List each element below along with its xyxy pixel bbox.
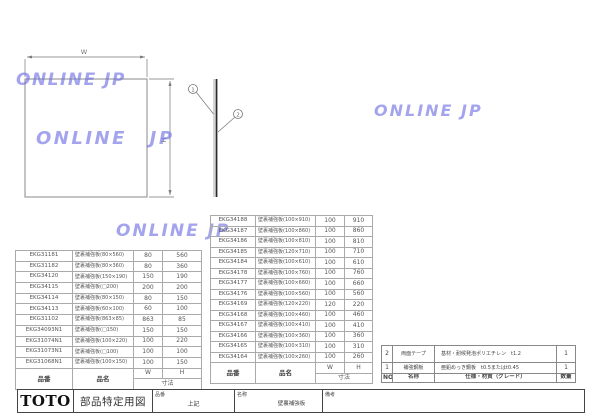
cell-name: 壁裏補強板(100×410) xyxy=(256,321,316,332)
cell-name: 壁裏補強板(100×360) xyxy=(256,331,316,342)
cell-w: 100 xyxy=(316,216,345,227)
table-row: EKG31182壁裏補強板(80×360)80360 xyxy=(16,261,202,272)
cell-w: 100 xyxy=(316,321,345,332)
cell-no: EKG34188 xyxy=(211,216,256,227)
table-row: EKG31068N1壁裏補強板(100×150)100150 xyxy=(16,357,202,368)
parts-table-left: EKG31181壁裏補強板(80×560)80560EKG31182壁裏補強板(… xyxy=(15,250,202,390)
cell-no: EKG34115 xyxy=(16,283,73,294)
header-dimension: 寸法 xyxy=(134,379,202,390)
cell-name: 壁裏補強板(□150) xyxy=(73,325,134,336)
bom-header-name: 名称 xyxy=(393,374,435,383)
cell-no: EKG31102 xyxy=(16,315,73,326)
watermark-online-jp: ONLINE JP xyxy=(16,70,126,90)
table-row: EKG31181壁裏補強板(80×560)80560 xyxy=(16,251,202,262)
cell-name: 壁裏補強板(100×220) xyxy=(73,336,134,347)
cell-h: 100 xyxy=(163,304,202,315)
cell-no: EKG34113 xyxy=(16,304,73,315)
cell-name: 壁裏補強板(80×360) xyxy=(73,261,134,272)
cell-no: EKG34178 xyxy=(211,268,256,279)
cell-no: EKG31182 xyxy=(16,261,73,272)
cell-name: 壁裏補強板(120×220) xyxy=(256,300,316,311)
watermark-online-jp: ONLINE JP xyxy=(36,128,175,149)
header-w: W xyxy=(134,368,163,379)
cell-spec: 基材・耐候発泡ポリエチレン t1.2 xyxy=(435,346,557,363)
table-row: EKG34178壁裏補強板(100×760)100760 xyxy=(211,268,373,279)
header-part-name: 品名 xyxy=(256,363,316,384)
cell-h: 560 xyxy=(163,251,202,262)
cell-name: 壁裏補強板(100×910) xyxy=(256,216,316,227)
cell-name: 壁裏補強板(150×190) xyxy=(73,272,134,283)
table-row: 2両面テープ基材・耐候発泡ポリエチレン t1.21 xyxy=(382,346,576,363)
cell-name: 壁裏補強板(100×760) xyxy=(256,268,316,279)
cell-w: 100 xyxy=(134,357,163,368)
bom-header-spec: 仕様・材質（グレード） xyxy=(435,374,557,383)
cell-no: EKG31073N1 xyxy=(16,347,73,358)
cell-name: 壁裏補強板(100×660) xyxy=(256,279,316,290)
cell-h: 360 xyxy=(163,261,202,272)
cell-h: 860 xyxy=(345,226,373,237)
cell-w: 100 xyxy=(316,226,345,237)
cell-h: 660 xyxy=(345,279,373,290)
cell-w: 863 xyxy=(134,315,163,326)
cell-w: 100 xyxy=(134,347,163,358)
cell-no: EKG34165 xyxy=(211,342,256,353)
cell-w: 100 xyxy=(316,289,345,300)
cell-no: EKG34177 xyxy=(211,279,256,290)
cell-no: EKG31068N1 xyxy=(16,357,73,368)
cell-h: 910 xyxy=(345,216,373,227)
cell-w: 120 xyxy=(316,300,345,311)
cell-no: EKG34166 xyxy=(211,331,256,342)
table-row: EKG31073N1壁裏補強板(□100)100100 xyxy=(16,347,202,358)
cell-w: 100 xyxy=(316,331,345,342)
table-row: EKG34115壁裏補強板(□200)200200 xyxy=(16,283,202,294)
cell-name: 壁裏補強板(100×860) xyxy=(256,226,316,237)
header-dimension: 寸法 xyxy=(316,373,373,384)
cell-name: 壁裏補強板(100×310) xyxy=(256,342,316,353)
cell-no: EKG34093N1 xyxy=(16,325,73,336)
part-no-cell: 品番 上記 xyxy=(153,390,235,412)
cell-h: 360 xyxy=(345,331,373,342)
cell-name: 壁裏補強板(100×610) xyxy=(256,258,316,269)
table-row: EKG34113壁裏補強板(60×100)60100 xyxy=(16,304,202,315)
cell-name: 壁裏補強板(100×460) xyxy=(256,310,316,321)
cell-qty: 1 xyxy=(557,363,576,374)
cell-no: EKG34186 xyxy=(211,237,256,248)
cell-name: 壁裏補強板(100×560) xyxy=(256,289,316,300)
document-type: 部品特定用図 xyxy=(74,390,153,412)
cell-h: 760 xyxy=(345,268,373,279)
part-no-value: 上記 xyxy=(187,399,199,408)
table-row: EKG34165壁裏補強板(100×310)100310 xyxy=(211,342,373,353)
cell-h: 610 xyxy=(345,258,373,269)
cell-no: EKG34184 xyxy=(211,258,256,269)
cell-no: EKG34164 xyxy=(211,352,256,363)
table-row: 1補強鋼板亜鉛めっき鋼板 t0.5またはt0.451 xyxy=(382,363,576,374)
cell-name: 壁裏補強板(□100) xyxy=(73,347,134,358)
header-part-name: 品名 xyxy=(73,368,134,389)
cell-w: 100 xyxy=(316,352,345,363)
cell-h: 150 xyxy=(163,357,202,368)
table-row: EKG34184壁裏補強板(100×610)100610 xyxy=(211,258,373,269)
part-no-label: 品番 xyxy=(155,391,165,398)
cell-name: 壁裏補強板(120×710) xyxy=(256,247,316,258)
header-h: H xyxy=(345,363,373,374)
watermark-online-jp: ONLINE JP xyxy=(374,101,483,120)
cell-w: 200 xyxy=(134,283,163,294)
table-row: EKG34093N1壁裏補強板(□150)150150 xyxy=(16,325,202,336)
table-row: EKG31102壁裏補強板(863×85)86385 xyxy=(16,315,202,326)
cell-qty: 1 xyxy=(557,346,576,363)
cell-no: EKG31074N1 xyxy=(16,336,73,347)
cell-h: 150 xyxy=(163,293,202,304)
table-row: EKG34164壁裏補強板(100×260)100260 xyxy=(211,352,373,363)
cell-no: EKG34168 xyxy=(211,310,256,321)
cell-name: 壁裏補強板(60×100) xyxy=(73,304,134,315)
title-block: TOTO 部品特定用図 品番 上記 名称 壁裏補強板 備考 xyxy=(17,389,585,413)
cell-h: 410 xyxy=(345,321,373,332)
cell-w: 100 xyxy=(316,342,345,353)
cell-no: 2 xyxy=(382,346,393,363)
cell-name: 補強鋼板 xyxy=(393,363,435,374)
part-name-label: 名称 xyxy=(237,391,247,398)
cell-no: EKG34120 xyxy=(16,272,73,283)
table-row: EKG34188壁裏補強板(100×910)100910 xyxy=(211,216,373,227)
table-row: EKG31074N1壁裏補強板(100×220)100220 xyxy=(16,336,202,347)
cell-w: 100 xyxy=(134,336,163,347)
cell-w: 100 xyxy=(316,258,345,269)
table-row: EKG34168壁裏補強板(100×460)100460 xyxy=(211,310,373,321)
table-row: EKG34185壁裏補強板(120×710)100710 xyxy=(211,247,373,258)
header-part-no: 品番 xyxy=(211,363,256,384)
table-row: EKG34176壁裏補強板(100×560)100560 xyxy=(211,289,373,300)
cell-no: EKG34114 xyxy=(16,293,73,304)
cell-no: EKG34176 xyxy=(211,289,256,300)
part-name-value: 壁裏補強板 xyxy=(278,399,306,407)
cell-h: 810 xyxy=(345,237,373,248)
cell-h: 150 xyxy=(163,325,202,336)
w-label: W xyxy=(81,48,88,56)
cell-name: 壁裏補強板(80×150) xyxy=(73,293,134,304)
table-row: EKG34169壁裏補強板(120×220)120220 xyxy=(211,300,373,311)
svg-text:2: 2 xyxy=(236,112,240,118)
cell-no: EKG34185 xyxy=(211,247,256,258)
cell-w: 100 xyxy=(316,279,345,290)
cell-w: 100 xyxy=(316,268,345,279)
bom-header-qty: 数量 xyxy=(557,374,576,383)
cell-w: 100 xyxy=(316,310,345,321)
part-drawing: W H 1 2 xyxy=(0,40,260,210)
cell-w: 80 xyxy=(134,261,163,272)
cell-h: 100 xyxy=(163,347,202,358)
cell-w: 100 xyxy=(316,247,345,258)
cell-h: 190 xyxy=(163,272,202,283)
cell-h: 200 xyxy=(163,283,202,294)
cell-h: 85 xyxy=(163,315,202,326)
table-row: EKG34167壁裏補強板(100×410)100410 xyxy=(211,321,373,332)
cell-name: 壁裏補強板(□200) xyxy=(73,283,134,294)
cell-name: 壁裏補強板(80×560) xyxy=(73,251,134,262)
cell-w: 150 xyxy=(134,272,163,283)
cell-h: 460 xyxy=(345,310,373,321)
cell-h: 220 xyxy=(345,300,373,311)
table-row: EKG34186壁裏補強板(100×810)100810 xyxy=(211,237,373,248)
cell-h: 260 xyxy=(345,352,373,363)
cell-name: 両面テープ xyxy=(393,346,435,363)
parts-table-middle: EKG34188壁裏補強板(100×910)100910EKG34187壁裏補強… xyxy=(210,215,373,384)
cell-no: EKG34187 xyxy=(211,226,256,237)
cell-w: 100 xyxy=(316,237,345,248)
remarks-cell: 備考 xyxy=(323,390,584,412)
cell-no: EKG34169 xyxy=(211,300,256,311)
header-w: W xyxy=(316,363,345,374)
header-part-no: 品番 xyxy=(16,368,73,389)
remarks-label: 備考 xyxy=(325,391,335,398)
cell-name: 壁裏補強板(100×810) xyxy=(256,237,316,248)
table-row: EKG34177壁裏補強板(100×660)100660 xyxy=(211,279,373,290)
header-h: H xyxy=(163,368,202,379)
bom-table: 2両面テープ基材・耐候発泡ポリエチレン t1.211補強鋼板亜鉛めっき鋼板 t0… xyxy=(381,345,576,383)
cell-name: 壁裏補強板(100×150) xyxy=(73,357,134,368)
cell-w: 80 xyxy=(134,251,163,262)
cell-w: 150 xyxy=(134,325,163,336)
svg-text:1: 1 xyxy=(191,87,195,93)
callout-2: 2 xyxy=(218,110,243,133)
cell-w: 80 xyxy=(134,293,163,304)
cell-h: 220 xyxy=(163,336,202,347)
table-row: EKG34187壁裏補強板(100×860)100860 xyxy=(211,226,373,237)
cell-no: 1 xyxy=(382,363,393,374)
cell-spec: 亜鉛めっき鋼板 t0.5またはt0.45 xyxy=(435,363,557,374)
table-row: EKG34166壁裏補強板(100×360)100360 xyxy=(211,331,373,342)
cell-no: EKG31181 xyxy=(16,251,73,262)
bom-header-no: NO xyxy=(382,374,393,383)
cell-h: 560 xyxy=(345,289,373,300)
part-name-cell: 名称 壁裏補強板 xyxy=(235,390,323,412)
callout-1: 1 xyxy=(189,85,214,115)
toto-logo: TOTO xyxy=(18,390,74,412)
cell-h: 710 xyxy=(345,247,373,258)
table-row: EKG34120壁裏補強板(150×190)150190 xyxy=(16,272,202,283)
cell-w: 60 xyxy=(134,304,163,315)
cell-name: 壁裏補強板(863×85) xyxy=(73,315,134,326)
cell-name: 壁裏補強板(100×260) xyxy=(256,352,316,363)
cell-h: 310 xyxy=(345,342,373,353)
table-row: EKG34114壁裏補強板(80×150)80150 xyxy=(16,293,202,304)
cell-no: EKG34167 xyxy=(211,321,256,332)
